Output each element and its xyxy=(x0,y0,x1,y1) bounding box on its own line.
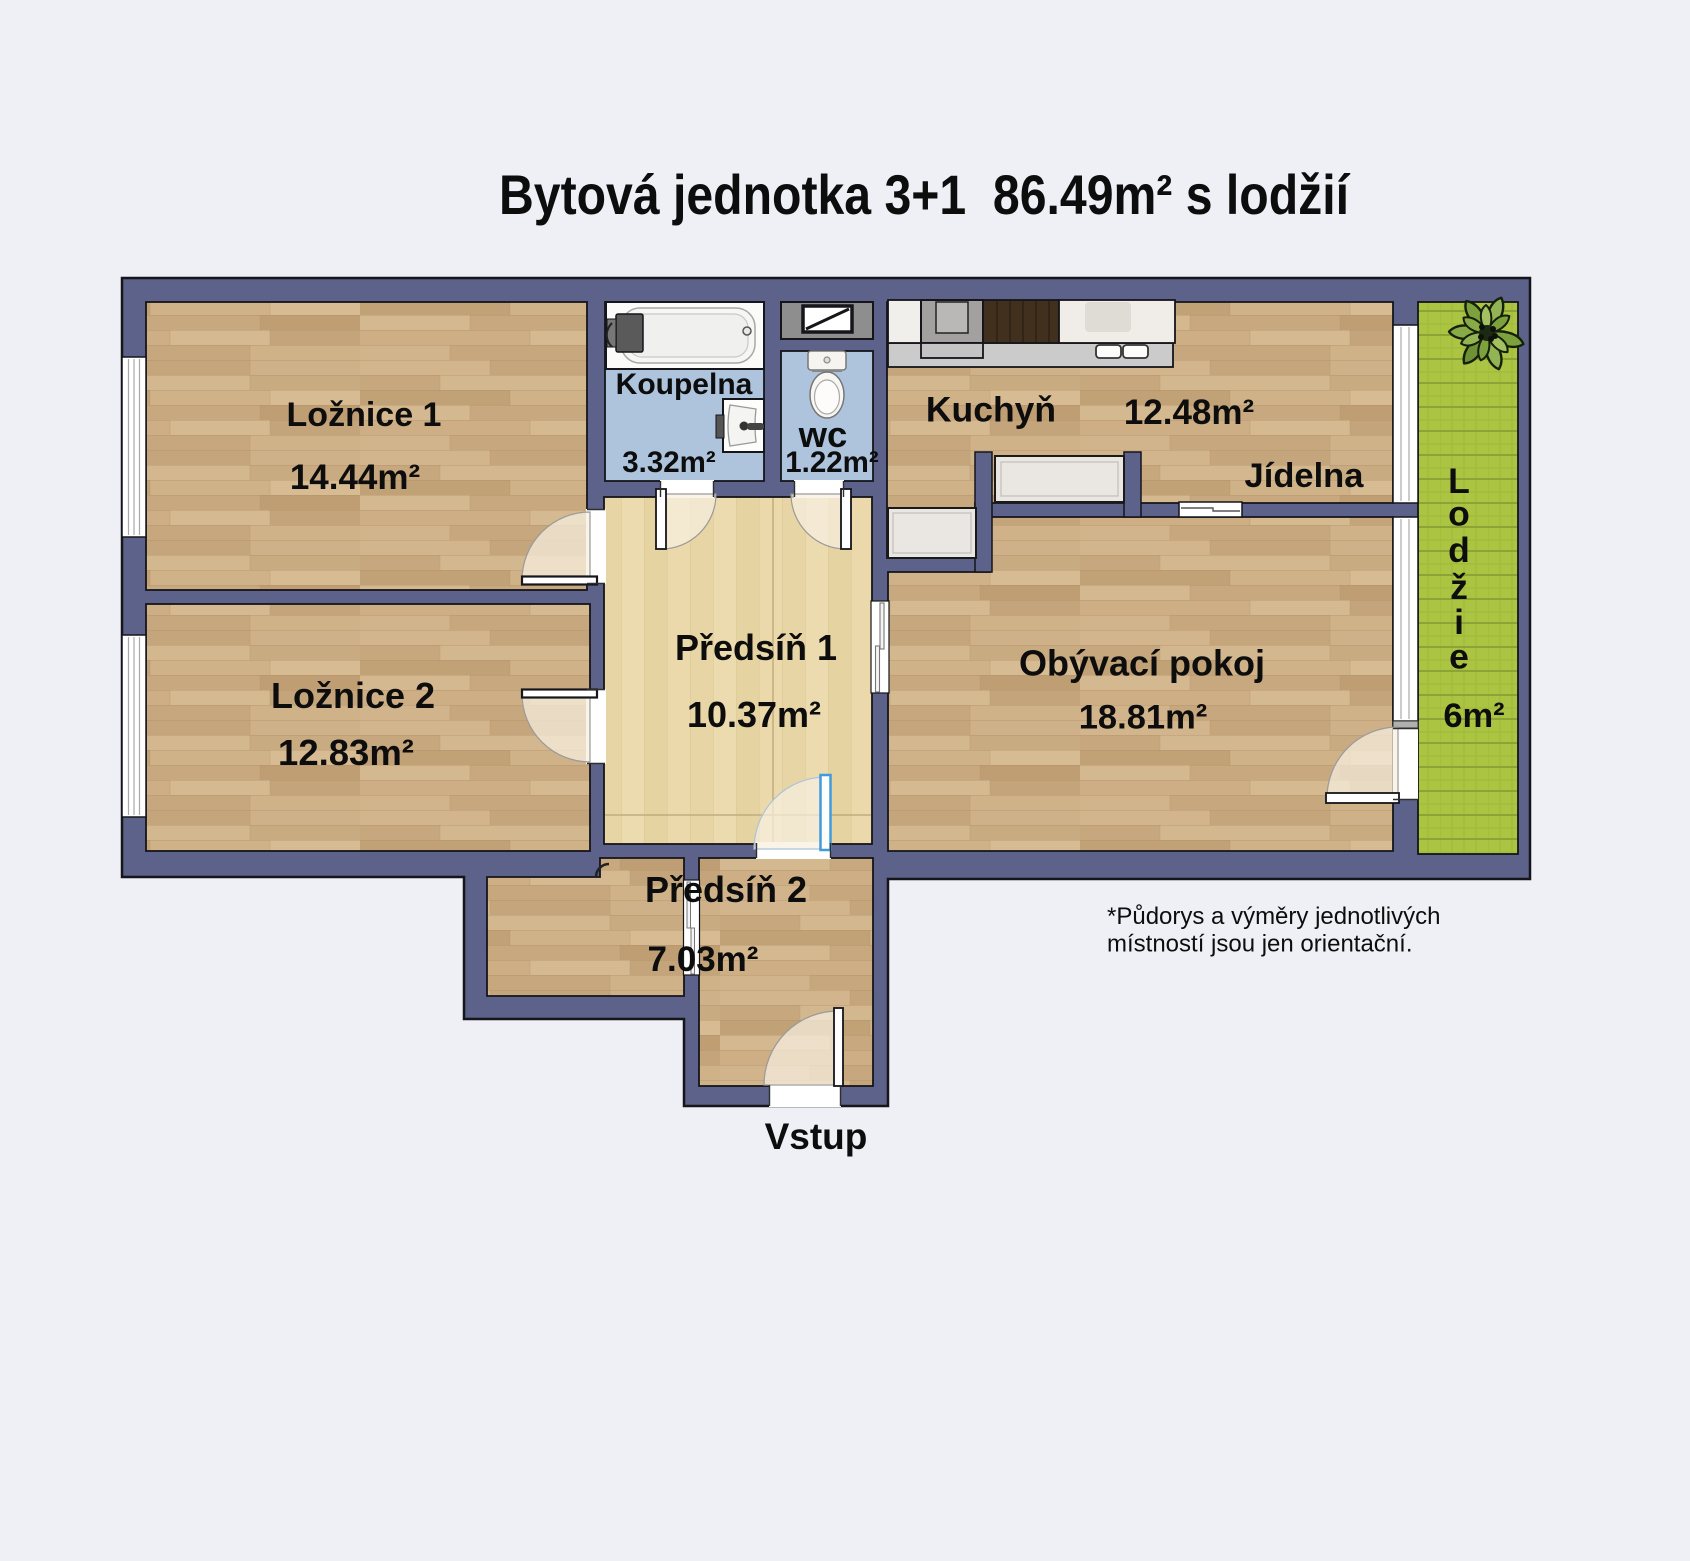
svg-text:e: e xyxy=(1449,637,1469,677)
svg-text:10.37m²: 10.37m² xyxy=(687,694,821,735)
svg-text:Předsíň 1: Předsíň 1 xyxy=(675,627,837,668)
svg-text:12.83m²: 12.83m² xyxy=(278,732,414,773)
svg-text:1.22m²: 1.22m² xyxy=(785,446,879,479)
svg-text:Ložnice 2: Ložnice 2 xyxy=(271,675,435,716)
svg-text:12.48m²: 12.48m² xyxy=(1124,393,1254,432)
svg-text:Ložnice 1: Ložnice 1 xyxy=(287,396,442,434)
svg-text:Kuchyň: Kuchyň xyxy=(926,390,1056,430)
svg-text:o: o xyxy=(1448,494,1470,534)
svg-text:3.32m²: 3.32m² xyxy=(622,446,716,479)
svg-text:ž: ž xyxy=(1450,567,1468,607)
svg-text:14.44m²: 14.44m² xyxy=(290,458,420,497)
svg-text:7.03m²: 7.03m² xyxy=(648,940,759,979)
svg-text:18.81m²: 18.81m² xyxy=(1079,699,1208,737)
svg-text:Vstup: Vstup xyxy=(765,1116,868,1157)
svg-text:6m²: 6m² xyxy=(1443,697,1504,735)
svg-text:Předsíň 2: Předsíň 2 xyxy=(645,869,807,910)
svg-text:*Půdorys a výměry jednotlivých: *Půdorys a výměry jednotlivých xyxy=(1107,903,1440,930)
svg-text:Koupelna: Koupelna xyxy=(616,368,753,401)
svg-text:Jídelna: Jídelna xyxy=(1245,457,1365,495)
svg-text:Obývací pokoj: Obývací pokoj xyxy=(1019,643,1265,684)
svg-text:Bytová jednotka 3+1 86.49m² s: Bytová jednotka 3+1 86.49m² s lodžií xyxy=(499,163,1351,226)
svg-text:místností jsou jen orientační.: místností jsou jen orientační. xyxy=(1107,931,1412,958)
svg-text:d: d xyxy=(1448,530,1470,570)
